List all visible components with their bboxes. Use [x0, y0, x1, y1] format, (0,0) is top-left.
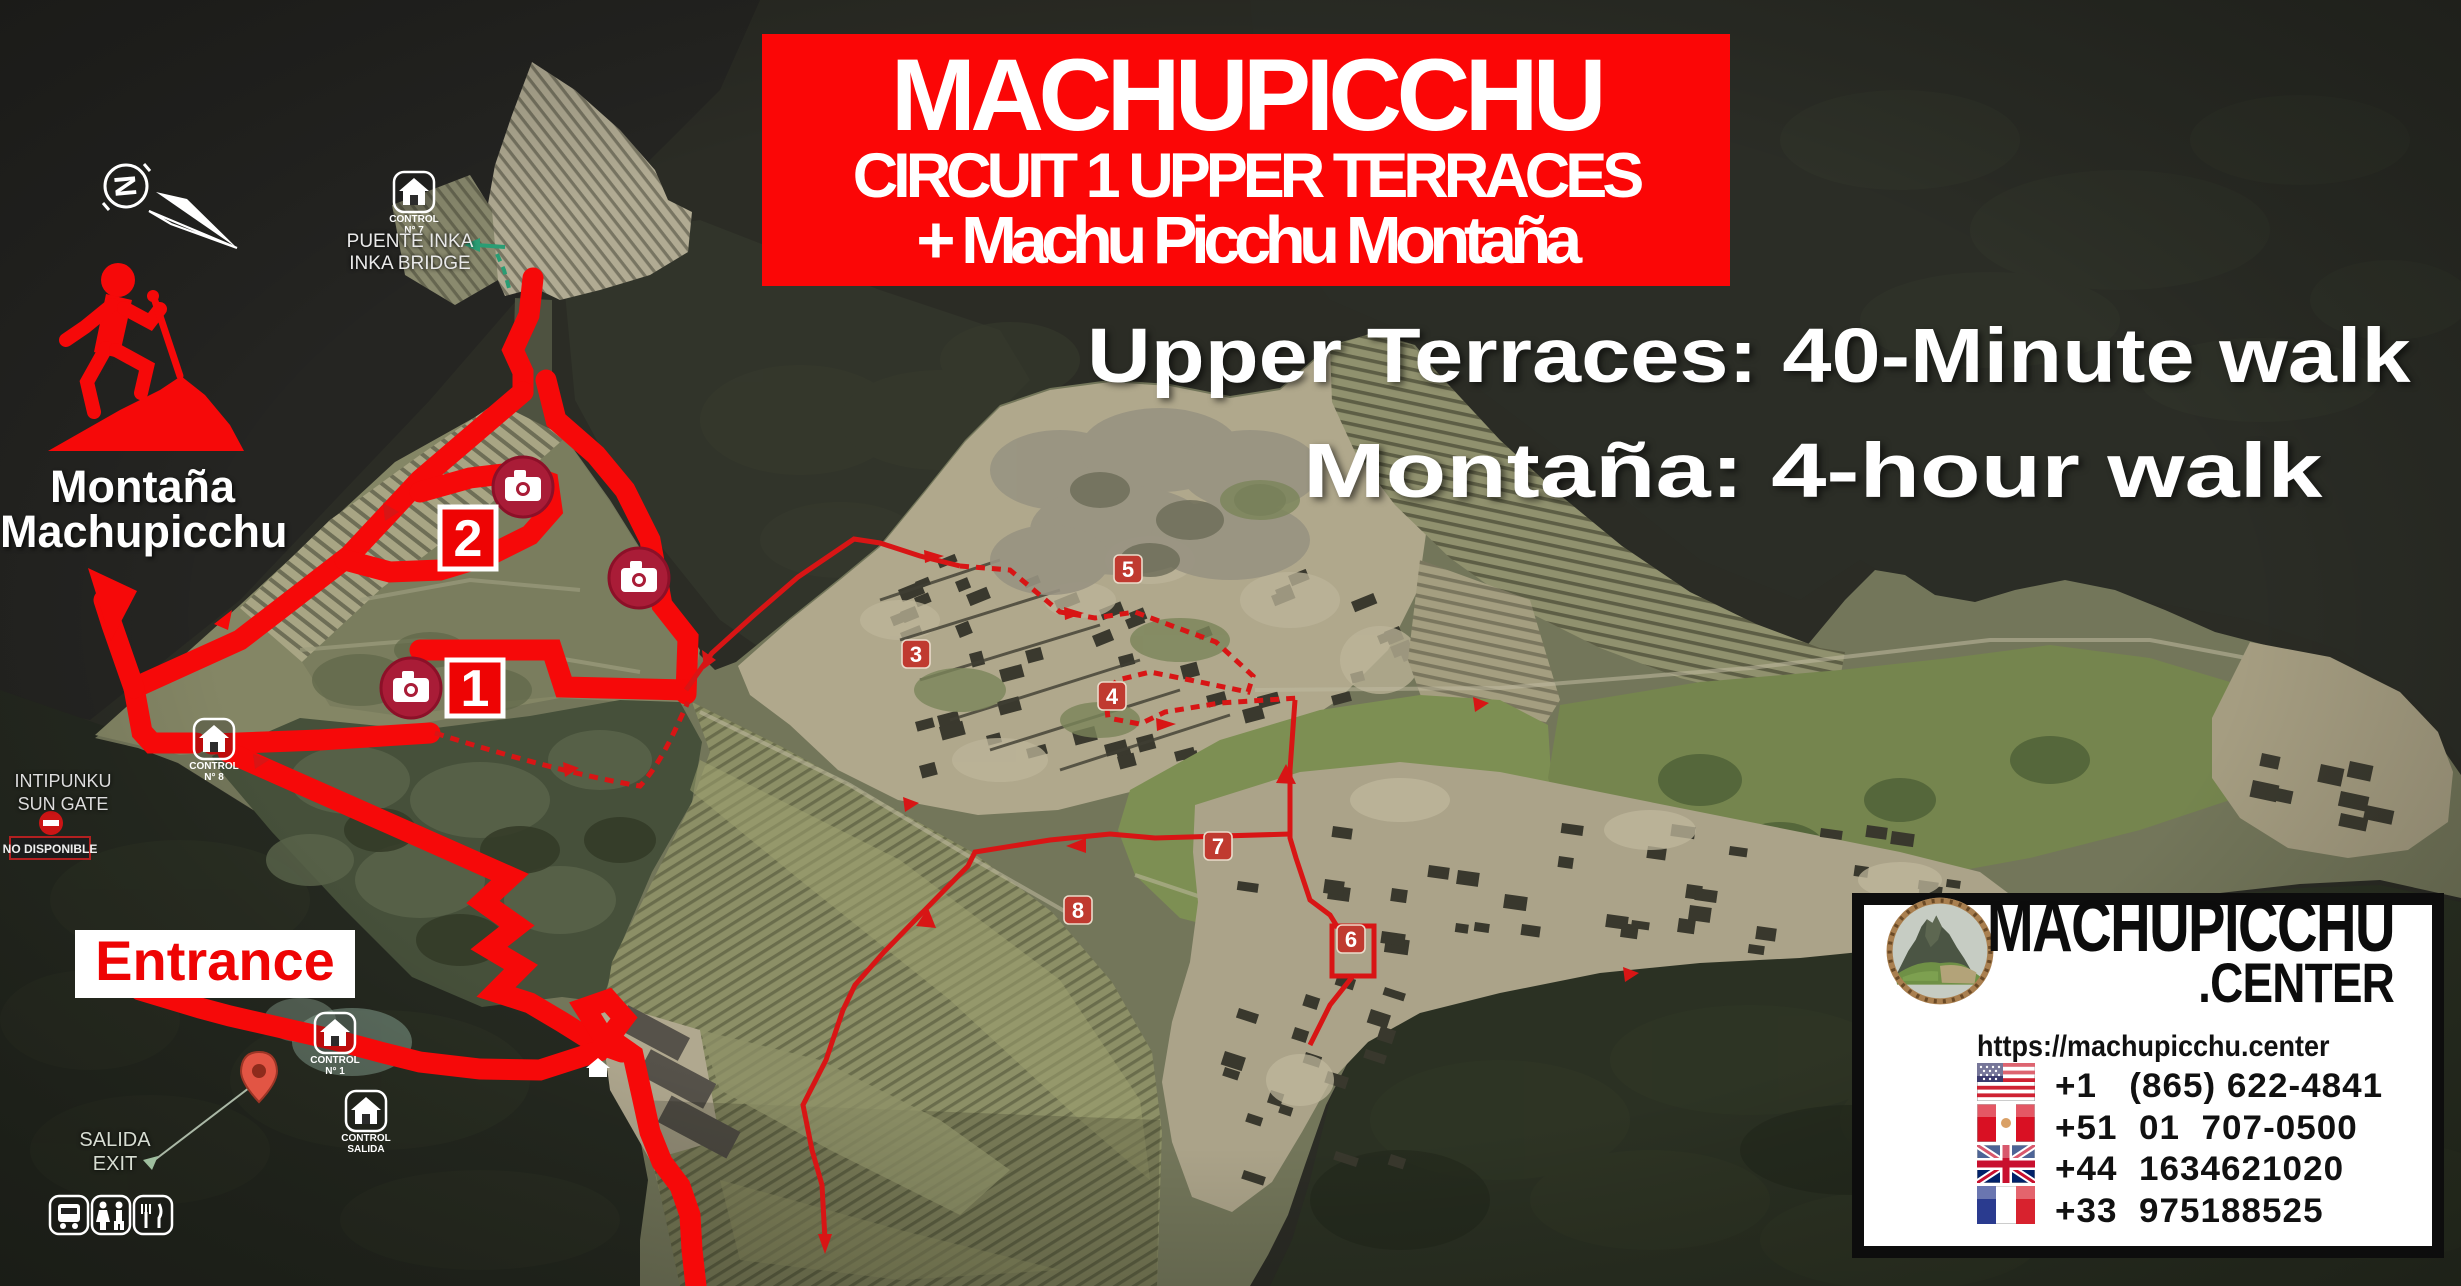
svg-text:4: 4	[1106, 684, 1119, 709]
svg-text:7: 7	[1212, 834, 1224, 859]
svg-text:N° 8: N° 8	[204, 772, 224, 783]
svg-text:CONTROL: CONTROL	[189, 761, 238, 772]
svg-text:N° 1: N° 1	[325, 1066, 345, 1077]
svg-text:SALIDA: SALIDA	[347, 1144, 384, 1155]
svg-text:5: 5	[1122, 557, 1134, 582]
svg-text:CONTROL: CONTROL	[341, 1133, 390, 1144]
svg-text:1: 1	[461, 660, 490, 718]
svg-text:N: N	[107, 174, 142, 198]
svg-text:CONTROL: CONTROL	[389, 214, 438, 225]
svg-text:2: 2	[454, 510, 483, 568]
svg-text:8: 8	[1072, 898, 1084, 923]
svg-text:CONTROL: CONTROL	[310, 1055, 359, 1066]
svg-text:NO DISPONIBLE: NO DISPONIBLE	[3, 842, 98, 856]
svg-text:3: 3	[910, 642, 922, 667]
svg-text:6: 6	[1345, 927, 1357, 952]
